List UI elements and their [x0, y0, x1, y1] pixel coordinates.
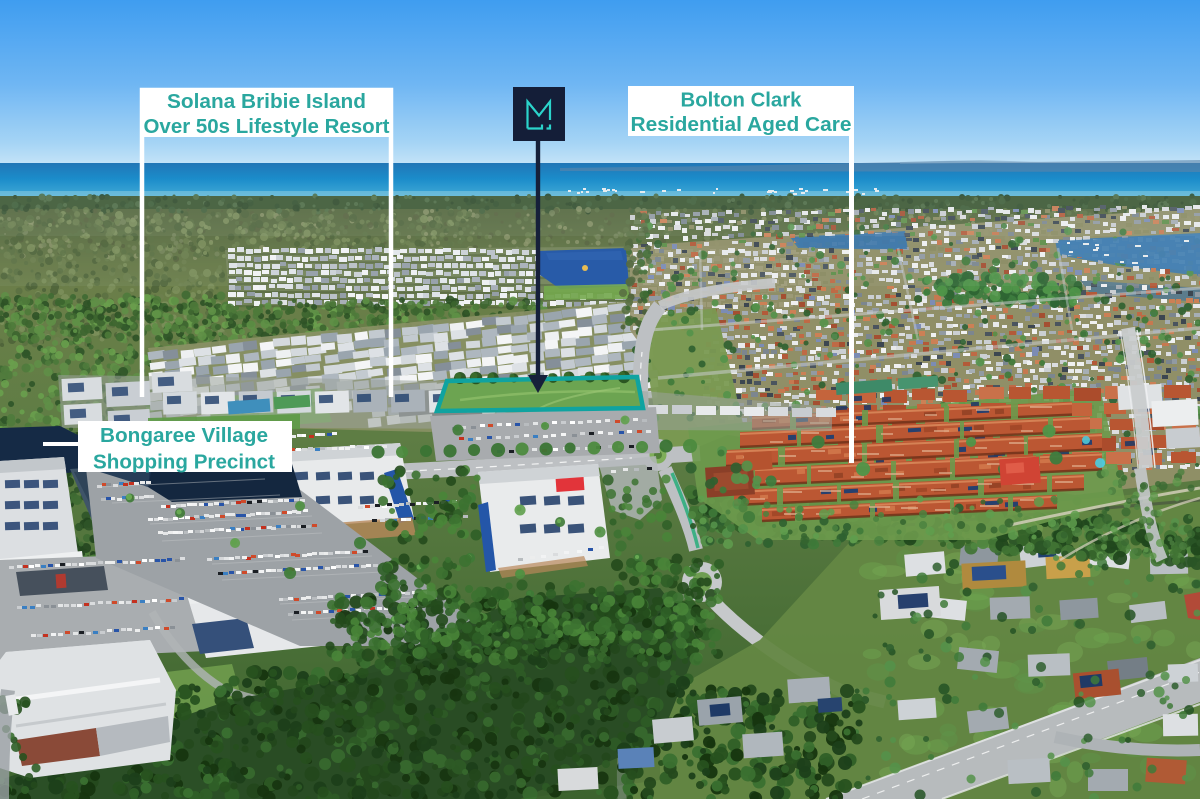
svg-text:Residential Aged Care: Residential Aged Care [631, 113, 852, 136]
svg-text:Solana Bribie Island: Solana Bribie Island [167, 90, 366, 113]
svg-text:Over 50s Lifestyle Resort: Over 50s Lifestyle Resort [144, 115, 390, 138]
svg-text:Shopping Precinct: Shopping Precinct [93, 451, 275, 474]
svg-text:Bolton Clark: Bolton Clark [681, 89, 803, 112]
svg-text:Bongaree Village: Bongaree Village [100, 424, 268, 447]
